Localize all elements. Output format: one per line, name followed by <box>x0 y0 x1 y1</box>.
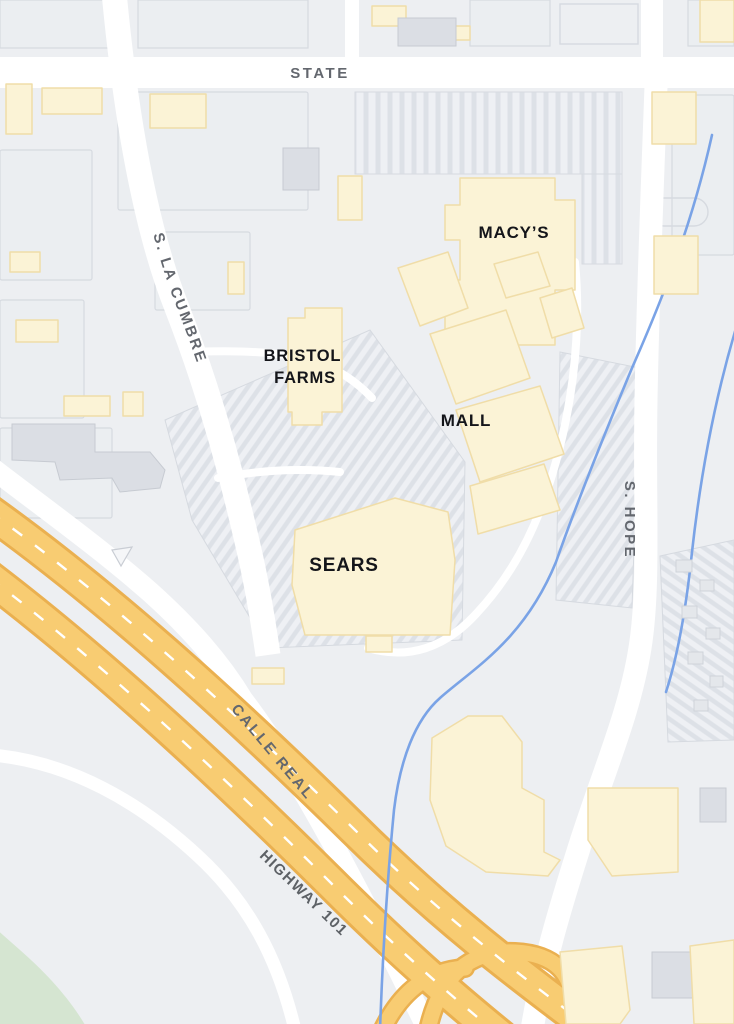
macys-label[interactable]: MACY’S <box>479 223 550 242</box>
map-canvas[interactable]: STATE S. LA CUMBRE S. HOPE CALLE REAL HI… <box>0 0 734 1024</box>
sears-label[interactable]: SEARS <box>309 555 378 576</box>
mall-label[interactable]: MALL <box>441 411 491 430</box>
bristol-farms-building[interactable] <box>288 308 342 425</box>
state-street-label: STATE <box>290 65 349 82</box>
s-hope-label: S. HOPE <box>621 481 638 559</box>
